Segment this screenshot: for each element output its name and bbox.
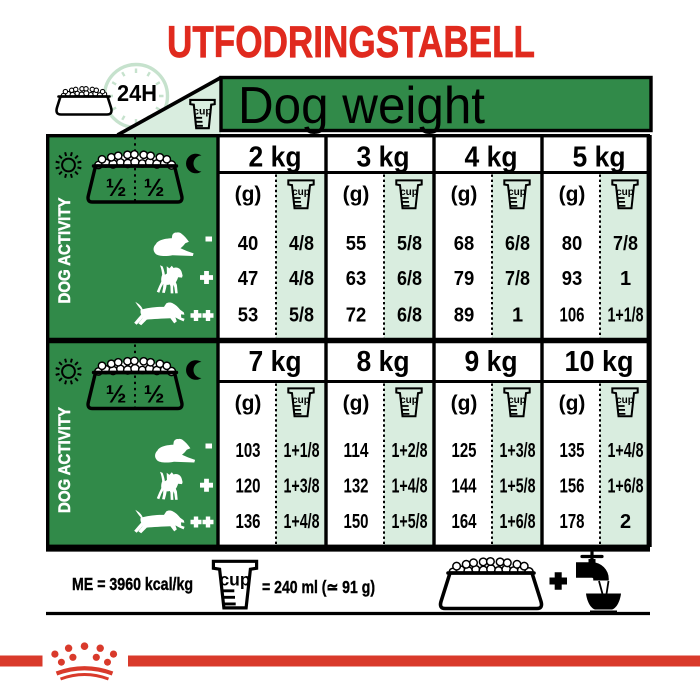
svg-text:cup: cup [292, 187, 310, 198]
svg-text:cup: cup [193, 106, 212, 118]
svg-text:(g): (g) [343, 183, 370, 206]
svg-text:½: ½ [144, 174, 165, 202]
svg-text:2 kg: 2 kg [249, 142, 302, 174]
svg-text:114: 114 [344, 440, 370, 462]
svg-text:cup: cup [292, 395, 310, 406]
svg-text:(g): (g) [559, 183, 586, 206]
svg-text:3 kg: 3 kg [357, 142, 410, 174]
svg-text:1+4/8: 1+4/8 [608, 440, 644, 462]
svg-text:79: 79 [454, 268, 475, 290]
svg-text:4 kg: 4 kg [465, 142, 518, 174]
svg-text:= 240 ml (≃ 91 g): = 240 ml (≃ 91 g) [262, 577, 375, 597]
svg-text:47: 47 [238, 268, 259, 290]
svg-text:72: 72 [346, 305, 367, 327]
svg-text:4/8: 4/8 [289, 268, 314, 290]
svg-text:136: 136 [236, 511, 261, 533]
svg-text:1+5/8: 1+5/8 [500, 476, 536, 498]
svg-text:80: 80 [562, 233, 583, 255]
svg-text:1+1/8: 1+1/8 [284, 440, 320, 462]
svg-text:(g): (g) [559, 392, 586, 415]
svg-text:135: 135 [560, 440, 585, 462]
svg-text:cup: cup [219, 570, 250, 590]
svg-text:144: 144 [452, 476, 478, 498]
svg-text:63: 63 [346, 268, 367, 290]
svg-text:5/8: 5/8 [397, 233, 422, 255]
svg-text:178: 178 [560, 511, 585, 533]
svg-text:150: 150 [344, 511, 369, 533]
svg-text:cup: cup [616, 395, 634, 406]
svg-text:cup: cup [508, 395, 526, 406]
svg-text:106: 106 [560, 305, 585, 327]
svg-text:103: 103 [236, 440, 261, 462]
svg-text:9 kg: 9 kg [465, 346, 518, 378]
svg-text:55: 55 [346, 233, 367, 255]
svg-text:1+1/8: 1+1/8 [608, 305, 644, 327]
svg-text:(g): (g) [451, 183, 478, 206]
svg-text:1+5/8: 1+5/8 [392, 511, 428, 533]
svg-text:DOG ACTIVITY: DOG ACTIVITY [55, 197, 74, 304]
svg-text:(g): (g) [451, 392, 478, 415]
svg-text:1+3/8: 1+3/8 [500, 440, 536, 462]
svg-text:(g): (g) [235, 392, 262, 415]
svg-text:7 kg: 7 kg [249, 346, 302, 378]
svg-text:Dog weight: Dog weight [238, 77, 486, 135]
svg-text:½: ½ [106, 381, 127, 409]
svg-text:1+4/8: 1+4/8 [392, 476, 428, 498]
svg-text:7/8: 7/8 [613, 233, 638, 255]
svg-text:DOG ACTIVITY: DOG ACTIVITY [55, 406, 74, 513]
svg-text:1+6/8: 1+6/8 [608, 476, 644, 498]
svg-text:4/8: 4/8 [289, 233, 314, 255]
svg-text:24H: 24H [117, 80, 157, 106]
svg-text:6/8: 6/8 [397, 268, 422, 290]
svg-text:½: ½ [106, 174, 127, 202]
svg-text:40: 40 [238, 233, 259, 255]
svg-text:1+4/8: 1+4/8 [284, 511, 320, 533]
svg-text:1: 1 [512, 305, 523, 327]
svg-text:UTFODRINGSTABELL: UTFODRINGSTABELL [167, 18, 535, 67]
svg-text:1: 1 [620, 268, 631, 290]
svg-text:cup: cup [616, 187, 634, 198]
svg-text:93: 93 [562, 268, 583, 290]
svg-text:125: 125 [452, 440, 477, 462]
svg-text:156: 156 [560, 476, 585, 498]
svg-text:89: 89 [454, 305, 475, 327]
svg-text:10 kg: 10 kg [565, 346, 634, 378]
svg-text:cup: cup [400, 187, 418, 198]
svg-text:(g): (g) [235, 183, 262, 206]
svg-text:68: 68 [454, 233, 475, 255]
svg-text:132: 132 [344, 476, 369, 498]
svg-text:8 kg: 8 kg [357, 346, 410, 378]
svg-text:53: 53 [238, 305, 259, 327]
svg-text:2: 2 [620, 511, 631, 533]
svg-text:5/8: 5/8 [289, 305, 314, 327]
svg-text:1+3/8: 1+3/8 [284, 476, 320, 498]
svg-text:6/8: 6/8 [397, 305, 422, 327]
svg-text:164: 164 [452, 511, 478, 533]
svg-text:cup: cup [400, 395, 418, 406]
svg-text:1+2/8: 1+2/8 [392, 440, 428, 462]
svg-text:5 kg: 5 kg [573, 142, 626, 174]
svg-text:7/8: 7/8 [505, 268, 530, 290]
svg-text:ME = 3960 kcal/kg: ME = 3960 kcal/kg [72, 574, 193, 594]
svg-text:½: ½ [144, 381, 165, 409]
svg-text:(g): (g) [343, 392, 370, 415]
svg-text:6/8: 6/8 [505, 233, 530, 255]
svg-text:120: 120 [236, 476, 261, 498]
svg-text:cup: cup [508, 187, 526, 198]
svg-text:1+6/8: 1+6/8 [500, 511, 536, 533]
